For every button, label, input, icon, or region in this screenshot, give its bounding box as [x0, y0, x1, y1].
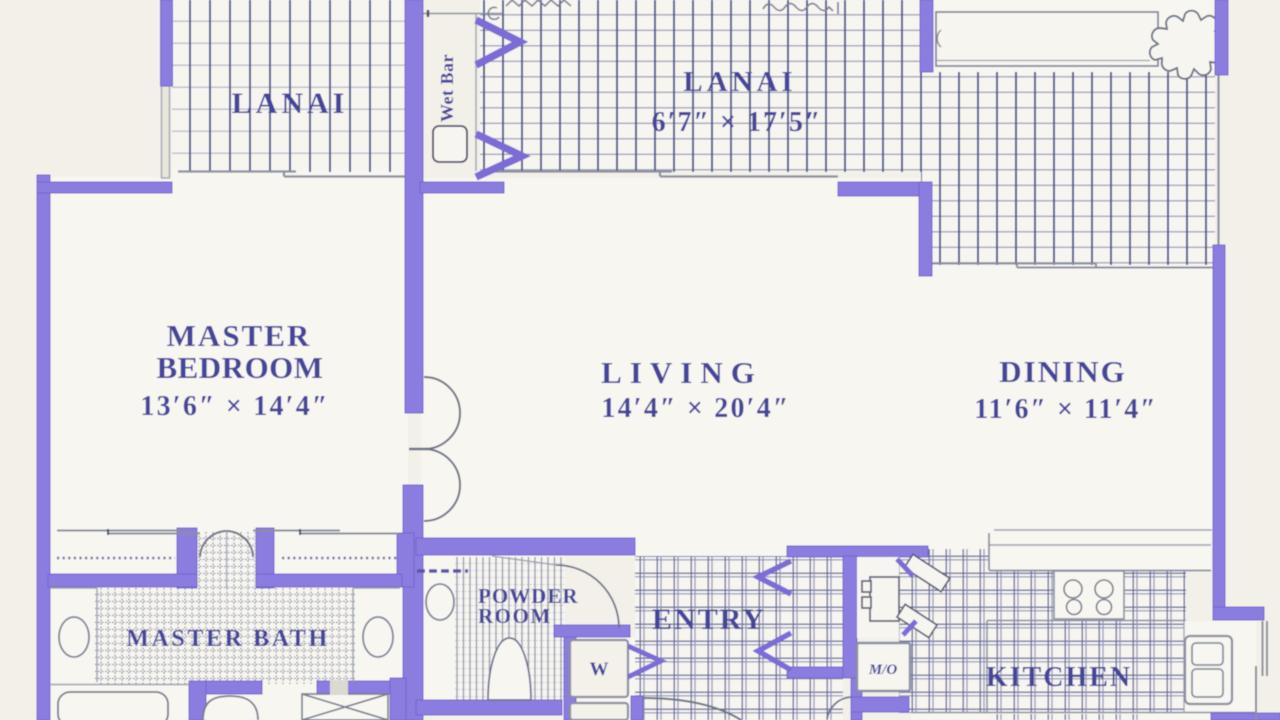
- svg-text:6′7″ × 17′5″: 6′7″ × 17′5″: [652, 107, 823, 138]
- svg-text:MASTER: MASTER: [167, 318, 312, 353]
- svg-text:W: W: [590, 659, 609, 680]
- svg-text:M/O: M/O: [868, 662, 898, 678]
- svg-text:KITCHEN: KITCHEN: [986, 662, 1132, 693]
- svg-text:13′6″ × 14′4″: 13′6″ × 14′4″: [140, 391, 329, 422]
- svg-text:Wet Bar: Wet Bar: [437, 54, 457, 122]
- svg-text:MASTER BATH: MASTER BATH: [126, 626, 330, 652]
- svg-text:ENTRY: ENTRY: [652, 603, 766, 636]
- svg-text:LANAI: LANAI: [232, 87, 349, 120]
- svg-text:LANAI: LANAI: [683, 66, 796, 98]
- svg-text:ROOM: ROOM: [478, 604, 552, 628]
- svg-text:BEDROOM: BEDROOM: [156, 350, 323, 385]
- svg-text:14′4″ × 20′4″: 14′4″ × 20′4″: [601, 393, 790, 424]
- svg-text:DINING: DINING: [999, 354, 1126, 389]
- svg-text:LIVING: LIVING: [601, 355, 763, 390]
- svg-text:11′6″ × 11′4″: 11′6″ × 11′4″: [974, 394, 1158, 425]
